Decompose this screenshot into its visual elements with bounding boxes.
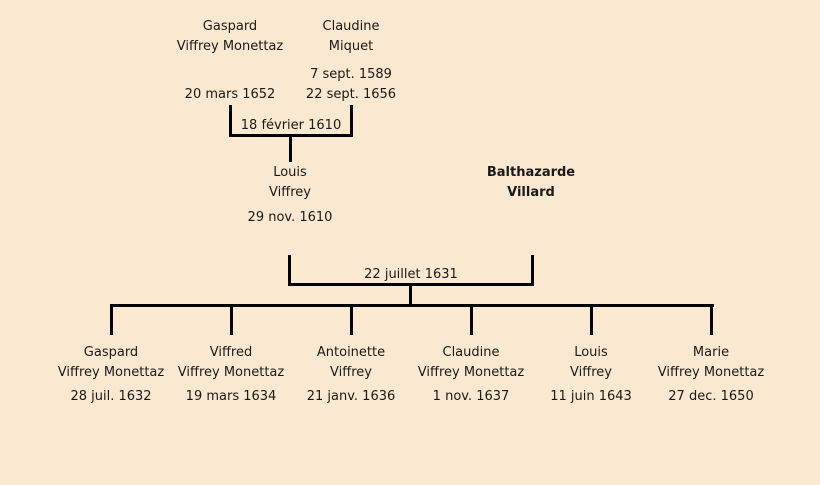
person-surname: Viffrey Monettaz: [418, 363, 524, 383]
person-child-1-date: 28 juil. 1632: [70, 387, 151, 407]
person-surname: Viffrey: [269, 183, 311, 203]
sibling-line: [110, 304, 714, 307]
person-father-name: Louis Viffrey: [269, 163, 311, 203]
person-child-3-date: 21 janv. 1636: [307, 387, 396, 407]
person-child-4-date: 1 nov. 1637: [433, 387, 510, 407]
person-surname: Miquet: [323, 37, 380, 57]
child-connector-4: [470, 304, 473, 335]
person-surname: Viffrey: [570, 363, 612, 383]
person-given-name: Marie: [658, 343, 764, 363]
person-father-date: 29 nov. 1610: [248, 208, 333, 228]
child-connector-3: [350, 304, 353, 335]
person-mother-name: Balthazarde Villard: [487, 163, 575, 203]
person-surname: Viffrey Monettaz: [178, 363, 284, 383]
person-given-name: Claudine: [323, 17, 380, 37]
person-given-name: Louis: [570, 343, 612, 363]
person-given-name: Gaspard: [58, 343, 164, 363]
child-connector-2: [230, 304, 233, 335]
person-child-5-date: 11 juin 1643: [550, 387, 632, 407]
child-connector-5: [590, 304, 593, 335]
marriage-bracket-1: 18 février 1610: [229, 105, 353, 137]
person-child-2-name: Viffred Viffrey Monettaz: [178, 343, 284, 383]
person-death-date: 22 sept. 1656: [306, 85, 396, 105]
person-child-3-name: Antoinette Viffrey: [317, 343, 385, 383]
person-given-name: Gaspard: [177, 17, 283, 37]
person-birth-date: 7 sept. 1589: [306, 65, 396, 85]
person-grandmother-dates: 7 sept. 1589 22 sept. 1656: [306, 65, 396, 105]
person-child-6-name: Marie Viffrey Monettaz: [658, 343, 764, 383]
marriage-date-label-2: 22 juillet 1631: [291, 267, 531, 282]
person-surname: Viffrey Monettaz: [177, 37, 283, 57]
person-child-4-name: Claudine Viffrey Monettaz: [418, 343, 524, 383]
person-given-name: Claudine: [418, 343, 524, 363]
person-given-name: Balthazarde: [487, 163, 575, 183]
marriage-date-label-1: 18 février 1610: [232, 118, 350, 133]
marriage-bracket-2: 22 juillet 1631: [288, 255, 534, 286]
child-connector-1: [110, 304, 113, 335]
person-child-6-date: 27 dec. 1650: [668, 387, 753, 407]
person-given-name: Viffred: [178, 343, 284, 363]
person-grandfather-date: 20 mars 1652: [185, 85, 276, 105]
person-child-2-date: 19 mars 1634: [186, 387, 277, 407]
family-tree-canvas: Gaspard Viffrey Monettaz 20 mars 1652 Cl…: [0, 0, 820, 485]
person-grandmother-name: Claudine Miquet: [323, 17, 380, 57]
person-surname: Viffrey: [317, 363, 385, 383]
descent-line-2: [409, 286, 412, 304]
person-surname: Viffrey Monettaz: [58, 363, 164, 383]
person-surname: Viffrey Monettaz: [658, 363, 764, 383]
person-child-5-name: Louis Viffrey: [570, 343, 612, 383]
person-given-name: Antoinette: [317, 343, 385, 363]
person-grandfather-name: Gaspard Viffrey Monettaz: [177, 17, 283, 57]
person-given-name: Louis: [269, 163, 311, 183]
child-connector-6: [710, 304, 713, 335]
descent-line-1: [289, 137, 292, 162]
person-child-1-name: Gaspard Viffrey Monettaz: [58, 343, 164, 383]
person-surname: Villard: [487, 183, 575, 203]
